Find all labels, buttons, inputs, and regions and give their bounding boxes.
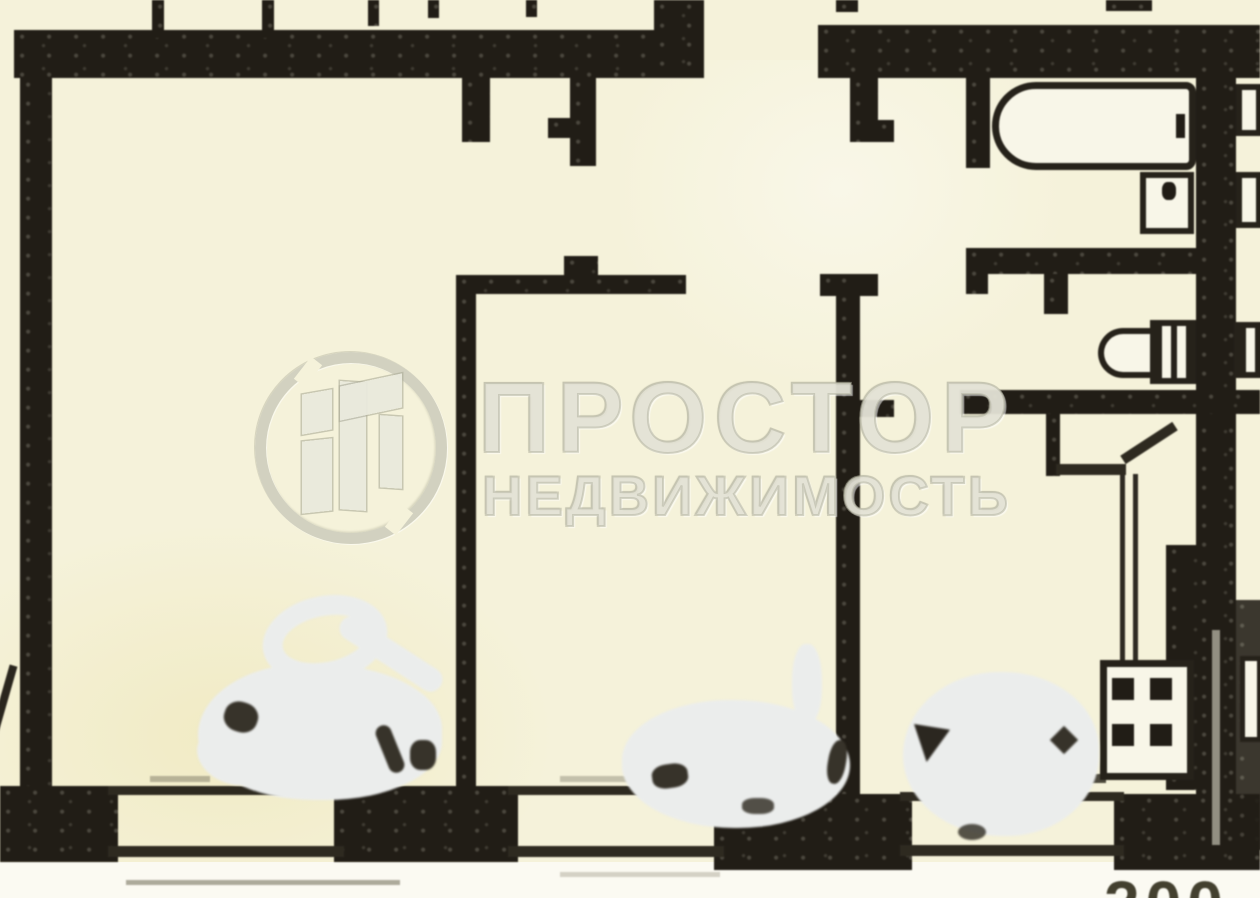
erased-text-remnant-c3 [958,824,986,840]
erased-text-remnant-a3 [410,740,436,770]
eraser-blob-middle-finger [792,644,822,724]
eraser-blob-middle-body [622,700,850,828]
eraser-layer [0,0,1260,898]
eraser-blob-kitchen-body [903,672,1099,836]
floorplan-scan: 200 ПРОСТОР НЕДВИЖИМОСТЬ [0,0,1260,898]
erased-text-remnant-b2 [742,798,774,814]
